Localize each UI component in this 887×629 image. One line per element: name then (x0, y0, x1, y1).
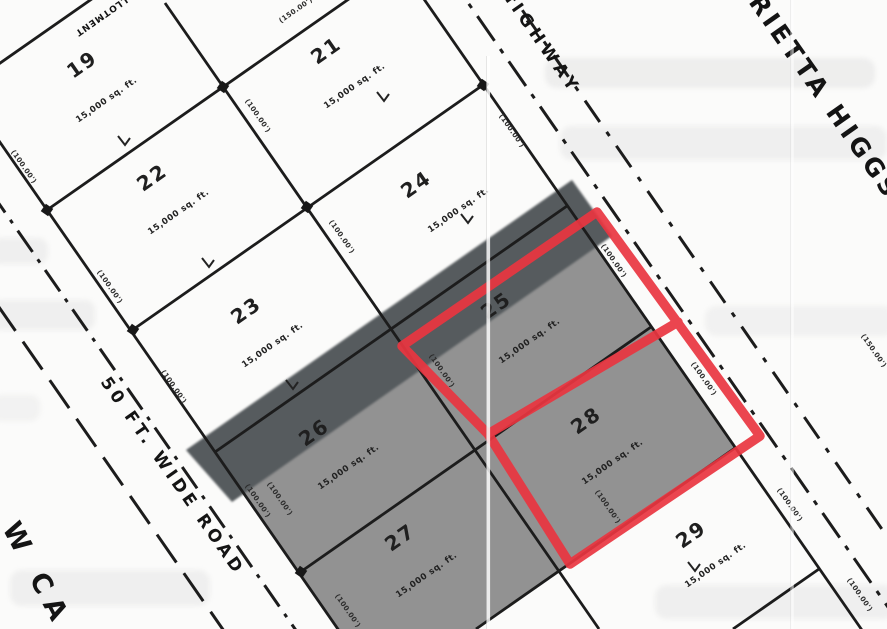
plat-map-svg: (100.00') (100.00') (100.00') (100.00') … (0, 0, 887, 629)
plat-map-scan: (100.00') (100.00') (100.00') (100.00') … (0, 0, 887, 629)
